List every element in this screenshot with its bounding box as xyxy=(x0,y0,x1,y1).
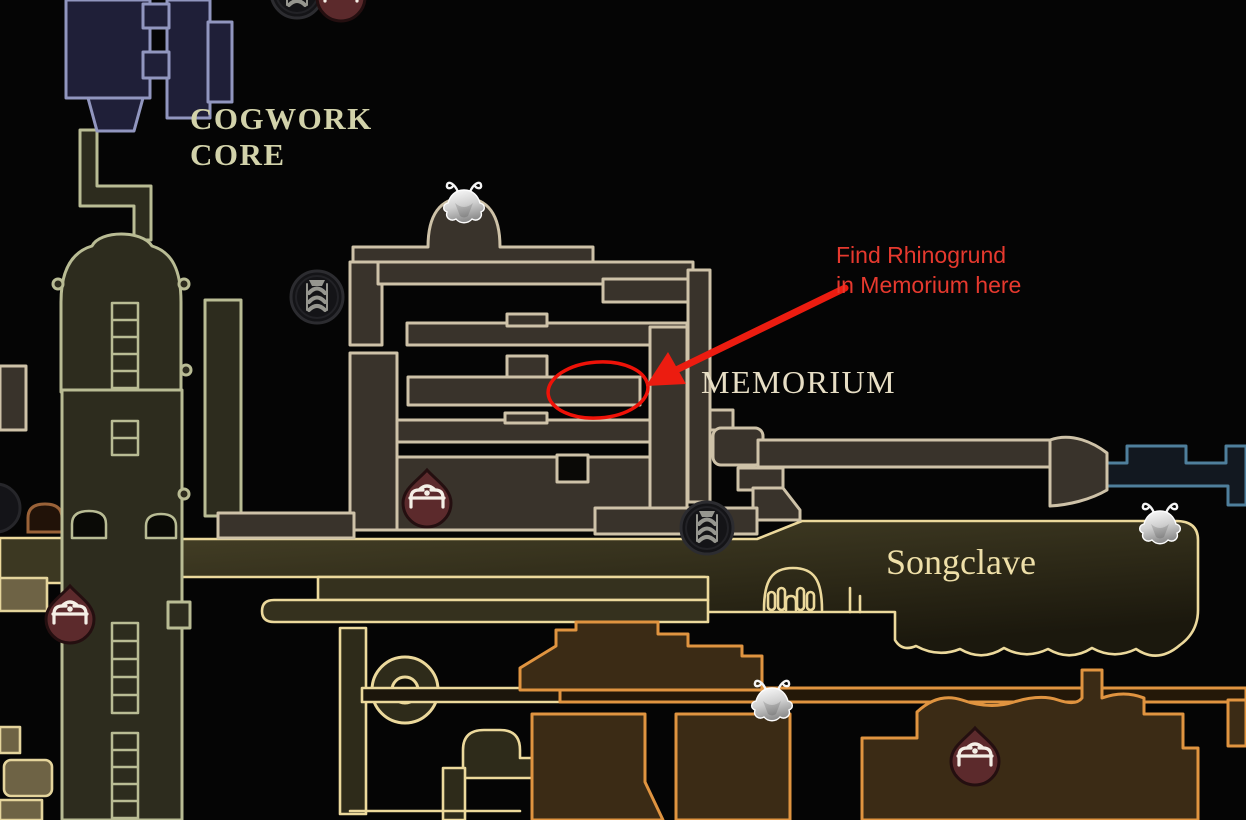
cogwork-core-region xyxy=(53,130,241,820)
cogwork-dome xyxy=(61,234,181,392)
memorium-funnel xyxy=(1050,437,1107,506)
tube-station-icon xyxy=(291,271,343,323)
tube-station-icon xyxy=(271,0,323,18)
map-art xyxy=(0,0,1246,820)
bell-flower-icon xyxy=(1140,504,1181,544)
left-edge-fragments xyxy=(0,484,62,532)
orange-rooms-region xyxy=(520,622,1246,820)
memorium-east-corridor xyxy=(758,440,1068,467)
cogwork-shaft xyxy=(205,300,241,516)
bell-flower-icon xyxy=(444,183,485,223)
tube-station-icon xyxy=(681,502,733,554)
bench-icon xyxy=(317,0,365,21)
upper-navy-rooms xyxy=(66,0,232,131)
khaki-blocks xyxy=(0,578,52,820)
blue-corridor xyxy=(1107,446,1246,505)
memorium-circled-floor xyxy=(408,377,640,405)
map-canvas[interactable]: COGWORK CORE MEMORIUM Songclave Find Rhi… xyxy=(0,0,1246,820)
cogwork-zigzag-corridor xyxy=(80,130,151,240)
